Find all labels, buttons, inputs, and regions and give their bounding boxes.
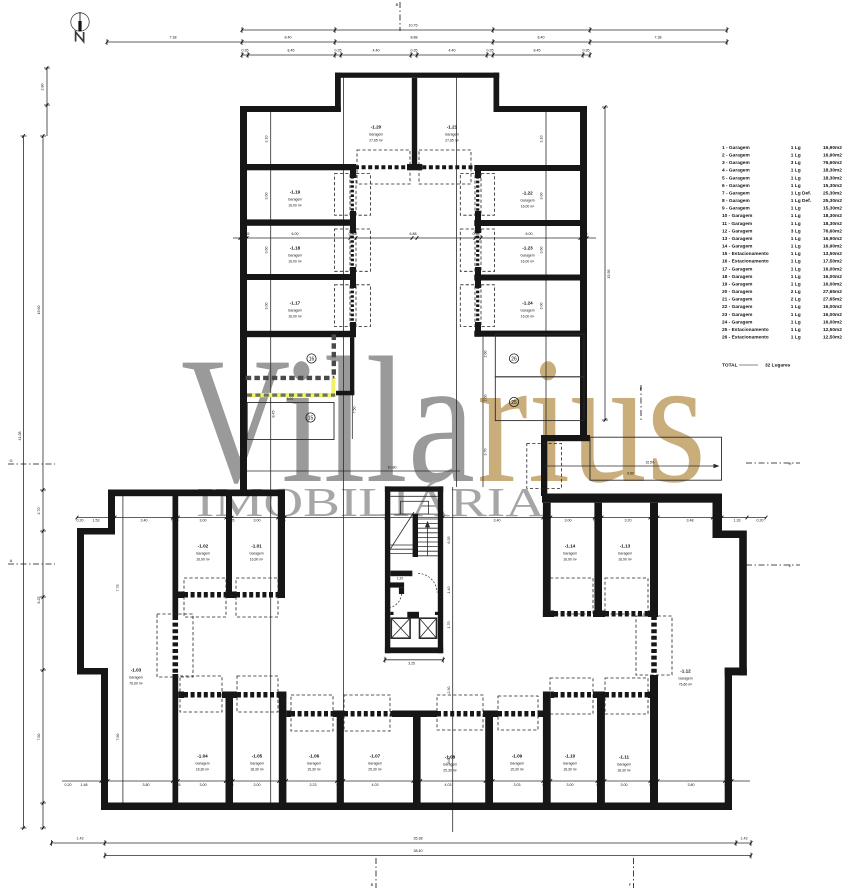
svg-text:16.5%: 16.5% — [645, 461, 654, 465]
svg-text:Garagem: Garagem — [445, 132, 459, 136]
svg-text:76,60 m²: 76,60 m² — [129, 682, 143, 686]
svg-text:17,50m2: 17,50m2 — [823, 259, 842, 265]
svg-text:7.60: 7.60 — [37, 734, 41, 741]
svg-text:1 Lg: 1 Lg — [791, 312, 801, 318]
svg-text:16,00m2: 16,00m2 — [823, 319, 842, 325]
svg-text:-1.19: -1.19 — [290, 190, 301, 195]
svg-text:8.25: 8.25 — [37, 597, 41, 604]
svg-text:0.20: 0.20 — [77, 519, 84, 523]
svg-text:18,30m2: 18,30m2 — [823, 221, 842, 227]
svg-text:1 Lg: 1 Lg — [791, 213, 801, 219]
svg-text:24 - Garagem: 24 - Garagem — [722, 319, 752, 325]
svg-text:1 Lg: 1 Lg — [791, 183, 801, 189]
svg-text:3.80: 3.80 — [688, 783, 695, 787]
svg-text:2 Lg: 2 Lg — [791, 289, 801, 295]
svg-text:16,00 m²: 16,00 m² — [521, 315, 535, 319]
svg-text:Garagem: Garagem — [563, 761, 577, 765]
svg-text:1.33: 1.33 — [734, 519, 741, 523]
svg-text:3.03: 3.03 — [514, 783, 521, 787]
svg-text:6.00: 6.00 — [292, 232, 299, 236]
svg-text:25 - Estacionamento: 25 - Estacionamento — [722, 327, 769, 333]
svg-text:12,50m2: 12,50m2 — [823, 335, 842, 341]
svg-text:4.03: 4.03 — [445, 783, 452, 787]
svg-text:3.40: 3.40 — [494, 519, 501, 523]
svg-text:76,60 m²: 76,60 m² — [679, 683, 693, 687]
svg-text:3 Lg: 3 Lg — [791, 228, 801, 234]
svg-text:10 - Garagem: 10 - Garagem — [722, 213, 752, 219]
svg-text:Garagem: Garagem — [520, 308, 534, 312]
svg-text:3.00: 3.00 — [200, 783, 207, 787]
svg-text:16,00 m²: 16,00 m² — [521, 260, 535, 264]
svg-text:16: 16 — [309, 356, 315, 362]
svg-text:1 Lg Def.: 1 Lg Def. — [791, 198, 811, 204]
svg-text:1 Lg: 1 Lg — [791, 266, 801, 272]
svg-text:76,60m2: 76,60m2 — [823, 228, 842, 234]
svg-text:-1.23: -1.23 — [522, 246, 533, 251]
svg-text:16,00m2: 16,00m2 — [823, 266, 842, 272]
svg-text:Garagem: Garagem — [369, 132, 383, 136]
svg-text:-1.22: -1.22 — [522, 191, 533, 196]
svg-text:16,00m2: 16,00m2 — [823, 274, 842, 280]
svg-text:23 - Garagem: 23 - Garagem — [722, 312, 752, 318]
svg-text:-1.24: -1.24 — [522, 301, 533, 306]
svg-text:Garagem: Garagem — [288, 197, 302, 201]
svg-text:Garagem: Garagem — [249, 551, 263, 555]
svg-text:27,65 m²: 27,65 m² — [369, 139, 383, 143]
svg-text:B: B — [396, 2, 399, 7]
svg-text:18,30 m²: 18,30 m² — [250, 768, 264, 772]
svg-text:18,30 m²: 18,30 m² — [196, 768, 210, 772]
svg-text:16,90 m²: 16,90 m² — [618, 558, 632, 562]
svg-text:18 - Garagem: 18 - Garagem — [722, 274, 752, 280]
svg-text:1 Lg: 1 Lg — [791, 251, 801, 257]
svg-text:21 - Garagem: 21 - Garagem — [722, 297, 752, 303]
svg-text:Garagem: Garagem — [288, 253, 302, 257]
svg-text:1.48: 1.48 — [81, 783, 88, 787]
svg-text:7.60: 7.60 — [116, 734, 120, 741]
svg-text:Garagem: Garagem — [288, 308, 302, 312]
svg-text:1 Lg: 1 Lg — [791, 304, 801, 310]
svg-text:3.00: 3.00 — [200, 519, 207, 523]
svg-text:-1.18: -1.18 — [290, 246, 301, 251]
svg-text:10.80: 10.80 — [388, 466, 397, 470]
svg-text:16,00m2: 16,00m2 — [823, 281, 842, 287]
svg-text:2.80: 2.80 — [41, 84, 45, 91]
svg-text:1.20: 1.20 — [397, 577, 403, 581]
svg-text:1 Lg: 1 Lg — [791, 327, 801, 333]
svg-text:16,00 m²: 16,00 m² — [288, 315, 302, 319]
svg-text:Garagem: Garagem — [618, 551, 632, 555]
svg-text:8.45: 8.45 — [272, 411, 276, 418]
svg-text:1 Lg: 1 Lg — [791, 319, 801, 325]
svg-text:4.40: 4.40 — [449, 49, 456, 53]
svg-text:-1.11: -1.11 — [619, 755, 630, 760]
svg-text:22 - Garagem: 22 - Garagem — [722, 304, 752, 310]
svg-text:Garagem: Garagem — [520, 253, 534, 257]
svg-text:3.00: 3.00 — [254, 783, 261, 787]
svg-text:-1.12: -1.12 — [680, 669, 691, 674]
svg-text:12,50m2: 12,50m2 — [823, 327, 842, 333]
svg-text:3.00: 3.00 — [540, 193, 544, 200]
svg-text:5 - Garagem: 5 - Garagem — [722, 175, 750, 181]
svg-text:10.75: 10.75 — [409, 24, 418, 28]
svg-text:Garagem: Garagem — [617, 762, 631, 766]
svg-text:15.95: 15.95 — [607, 270, 611, 279]
svg-text:1.40: 1.40 — [447, 587, 451, 594]
svg-text:H: H — [789, 461, 792, 466]
svg-text:Garagem: Garagem — [443, 762, 457, 766]
svg-text:3.48: 3.48 — [687, 519, 694, 523]
svg-text:Garagem: Garagem — [129, 675, 143, 679]
svg-text:2.70: 2.70 — [37, 508, 41, 515]
svg-text:16 - Estacionamento: 16 - Estacionamento — [722, 259, 769, 265]
svg-text:1 - Garagem: 1 - Garagem — [722, 145, 750, 151]
svg-text:16,00m2: 16,00m2 — [823, 312, 842, 318]
svg-text:76,60m2: 76,60m2 — [823, 160, 842, 166]
svg-text:7.38: 7.38 — [655, 36, 662, 40]
svg-text:B: B — [371, 882, 374, 887]
svg-text:-1.04: -1.04 — [197, 754, 208, 759]
svg-text:16,90m2: 16,90m2 — [823, 145, 842, 151]
svg-text:8.45: 8.45 — [534, 49, 541, 53]
svg-text:-1.21: -1.21 — [447, 125, 458, 130]
svg-text:15: 15 — [308, 415, 314, 421]
svg-text:16,90 m²: 16,90 m² — [250, 558, 264, 562]
svg-text:3.00: 3.00 — [254, 519, 261, 523]
svg-text:6.88: 6.88 — [410, 232, 417, 236]
svg-text:0.35: 0.35 — [583, 49, 590, 53]
svg-text:0.20: 0.20 — [757, 519, 764, 523]
svg-text:25,30m2: 25,30m2 — [823, 198, 842, 204]
svg-text:1 Lg: 1 Lg — [791, 259, 801, 265]
svg-text:3.60: 3.60 — [540, 247, 544, 254]
svg-text:3.10: 3.10 — [265, 136, 269, 143]
svg-text:4 - Garagem: 4 - Garagem — [722, 168, 750, 174]
svg-text:15,30m2: 15,30m2 — [823, 183, 842, 189]
svg-text:26: 26 — [511, 356, 517, 362]
svg-text:4.40: 4.40 — [373, 49, 380, 53]
svg-text:8.40: 8.40 — [538, 36, 545, 40]
svg-text:18,30m2: 18,30m2 — [823, 213, 842, 219]
svg-text:A: A — [10, 558, 13, 563]
svg-text:27,65 m²: 27,65 m² — [445, 139, 459, 143]
svg-text:3.23: 3.23 — [310, 783, 317, 787]
svg-text:9 - Garagem: 9 - Garagem — [722, 206, 750, 212]
svg-text:1 Lg Def.: 1 Lg Def. — [791, 191, 811, 197]
svg-text:6.80: 6.80 — [627, 472, 634, 476]
svg-text:15 - Estacionamento: 15 - Estacionamento — [722, 251, 769, 257]
svg-text:1 Lg: 1 Lg — [791, 206, 801, 212]
svg-text:0.35: 0.35 — [411, 49, 418, 53]
svg-text:18,30m2: 18,30m2 — [823, 175, 842, 181]
svg-text:35.38: 35.38 — [414, 837, 423, 841]
svg-text:7.50: 7.50 — [353, 407, 357, 414]
svg-text:20 - Garagem: 20 - Garagem — [722, 289, 752, 295]
svg-text:1 Lg: 1 Lg — [791, 281, 801, 287]
svg-text:15,30 m²: 15,30 m² — [510, 768, 524, 772]
svg-text:16,90 m²: 16,90 m² — [563, 558, 577, 562]
svg-text:1 Lg: 1 Lg — [791, 221, 801, 227]
svg-text:-1.17: -1.17 — [290, 301, 301, 306]
svg-text:5.00: 5.00 — [287, 397, 293, 401]
svg-text:3.10: 3.10 — [540, 136, 544, 143]
svg-text:TOTAL: TOTAL — [722, 363, 738, 369]
svg-text:15,30m2: 15,30m2 — [823, 206, 842, 212]
svg-text:1 Lg: 1 Lg — [791, 168, 801, 174]
svg-text:3.70: 3.70 — [484, 449, 488, 456]
svg-text:3 Lg: 3 Lg — [791, 160, 801, 166]
svg-text:16,00 m²: 16,00 m² — [288, 204, 302, 208]
svg-text:25: 25 — [511, 400, 517, 406]
svg-text:25,30 m²: 25,30 m² — [443, 769, 457, 773]
svg-text:18,30m2: 18,30m2 — [823, 168, 842, 174]
svg-text:3.20: 3.20 — [625, 519, 632, 523]
svg-text:0.35: 0.35 — [487, 49, 494, 53]
svg-text:-1.02: -1.02 — [198, 544, 209, 549]
svg-text:Garagem: Garagem — [563, 551, 577, 555]
svg-text:6.00: 6.00 — [526, 232, 533, 236]
svg-text:27,65m2: 27,65m2 — [823, 297, 842, 303]
svg-text:-1.13: -1.13 — [620, 544, 631, 549]
svg-text:G: G — [9, 458, 12, 463]
svg-text:Garagem: Garagem — [368, 761, 382, 765]
svg-text:0.35: 0.35 — [242, 49, 249, 53]
svg-text:7.75: 7.75 — [116, 585, 120, 592]
svg-text:-1.01: -1.01 — [251, 544, 262, 549]
svg-text:1 Lg: 1 Lg — [791, 145, 801, 151]
svg-text:1.53: 1.53 — [93, 519, 100, 523]
svg-text:2.60: 2.60 — [484, 395, 488, 402]
svg-text:26 - Estacionamento: 26 - Estacionamento — [722, 335, 769, 341]
svg-text:1 Lg: 1 Lg — [791, 274, 801, 280]
svg-text:41.08: 41.08 — [18, 432, 22, 441]
svg-text:Garagem: Garagem — [250, 761, 264, 765]
svg-text:18,30 m²: 18,30 m² — [563, 768, 577, 772]
svg-text:16,90m2: 16,90m2 — [823, 153, 842, 159]
svg-text:7.38: 7.38 — [170, 36, 177, 40]
svg-text:0.20: 0.20 — [65, 783, 72, 787]
svg-text:-1.06: -1.06 — [309, 754, 320, 759]
svg-text:3 - Garagem: 3 - Garagem — [722, 160, 750, 166]
svg-text:-1.20: -1.20 — [371, 125, 382, 130]
svg-text:14 - Garagem: 14 - Garagem — [722, 244, 752, 250]
svg-text:16,90m2: 16,90m2 — [823, 244, 842, 250]
svg-text:16,00 m²: 16,00 m² — [288, 260, 302, 264]
svg-text:25,30m2: 25,30m2 — [823, 191, 842, 197]
svg-text:3.00: 3.00 — [621, 783, 628, 787]
svg-text:3.00: 3.00 — [567, 783, 574, 787]
svg-text:1 Lg: 1 Lg — [791, 236, 801, 242]
svg-text:7 - Garagem: 7 - Garagem — [722, 191, 750, 197]
svg-text:19.60: 19.60 — [37, 306, 41, 315]
svg-text:2.30: 2.30 — [447, 687, 451, 694]
svg-text:11 - Garagem: 11 - Garagem — [722, 221, 752, 227]
svg-text:6.35: 6.35 — [447, 537, 451, 544]
svg-text:19 - Garagem: 19 - Garagem — [722, 281, 752, 287]
svg-text:Garagem: Garagem — [196, 551, 210, 555]
svg-text:13,50m2: 13,50m2 — [823, 251, 842, 257]
svg-text:27,65m2: 27,65m2 — [823, 289, 842, 295]
svg-text:15,30 m²: 15,30 m² — [307, 768, 321, 772]
svg-text:-1.08: -1.08 — [445, 755, 456, 760]
svg-text:1 Lg: 1 Lg — [791, 175, 801, 181]
svg-text:1.43: 1.43 — [77, 837, 84, 841]
svg-text:1.43: 1.43 — [741, 837, 748, 841]
svg-text:-1.10: -1.10 — [565, 754, 576, 759]
svg-text:2.60: 2.60 — [484, 351, 488, 358]
svg-text:16,90m2: 16,90m2 — [823, 236, 842, 242]
svg-text:1 Lg: 1 Lg — [791, 153, 801, 159]
svg-text:13 - Garagem: 13 - Garagem — [722, 236, 752, 242]
svg-text:3.80: 3.80 — [143, 783, 150, 787]
svg-text:1 Lg: 1 Lg — [791, 244, 801, 250]
svg-text:8.45: 8.45 — [288, 49, 295, 53]
svg-text:3.40: 3.40 — [141, 519, 148, 523]
svg-text:Garagem: Garagem — [678, 676, 692, 680]
svg-text:Garagem: Garagem — [195, 761, 209, 765]
svg-text:8.40: 8.40 — [285, 36, 292, 40]
svg-text:1 Lg: 1 Lg — [791, 335, 801, 341]
svg-text:12 - Garagem: 12 - Garagem — [722, 228, 752, 234]
svg-text:3.60: 3.60 — [265, 247, 269, 254]
svg-text:3.25: 3.25 — [408, 662, 415, 666]
svg-text:-1.03: -1.03 — [131, 668, 142, 673]
svg-text:-1.14: -1.14 — [565, 544, 576, 549]
svg-text:3.00: 3.00 — [540, 303, 544, 310]
svg-text:Garagem: Garagem — [307, 761, 321, 765]
svg-text:-1.07: -1.07 — [370, 754, 381, 759]
svg-text:6 - Garagem: 6 - Garagem — [722, 183, 750, 189]
svg-text:16,00m2: 16,00m2 — [823, 304, 842, 310]
svg-text:3.00: 3.00 — [265, 193, 269, 200]
svg-text:32 Lugares: 32 Lugares — [765, 363, 791, 369]
svg-text:3.00: 3.00 — [565, 519, 572, 523]
svg-text:18,30 m²: 18,30 m² — [617, 769, 631, 773]
svg-text:1.70: 1.70 — [447, 622, 451, 629]
svg-text:2 - Garagem: 2 - Garagem — [722, 153, 750, 159]
svg-text:38.40: 38.40 — [414, 849, 423, 853]
svg-text:4.03: 4.03 — [372, 783, 379, 787]
svg-text:16,00 m²: 16,00 m² — [521, 205, 535, 209]
svg-text:0.35: 0.35 — [335, 49, 342, 53]
svg-text:16,90 m²: 16,90 m² — [196, 558, 210, 562]
svg-text:25,30 m²: 25,30 m² — [368, 768, 382, 772]
svg-text:-1.05: -1.05 — [252, 754, 263, 759]
svg-text:Garagem: Garagem — [510, 761, 524, 765]
svg-text:2 Lg: 2 Lg — [791, 297, 801, 303]
svg-text:-1.09: -1.09 — [512, 754, 523, 759]
svg-text:8 - Garagem: 8 - Garagem — [722, 198, 750, 204]
svg-text:3.00: 3.00 — [265, 303, 269, 310]
svg-text:17 - Garagem: 17 - Garagem — [722, 266, 752, 272]
svg-text:E: E — [789, 563, 792, 568]
svg-text:8.88: 8.88 — [411, 36, 418, 40]
svg-text:Garagem: Garagem — [520, 198, 534, 202]
